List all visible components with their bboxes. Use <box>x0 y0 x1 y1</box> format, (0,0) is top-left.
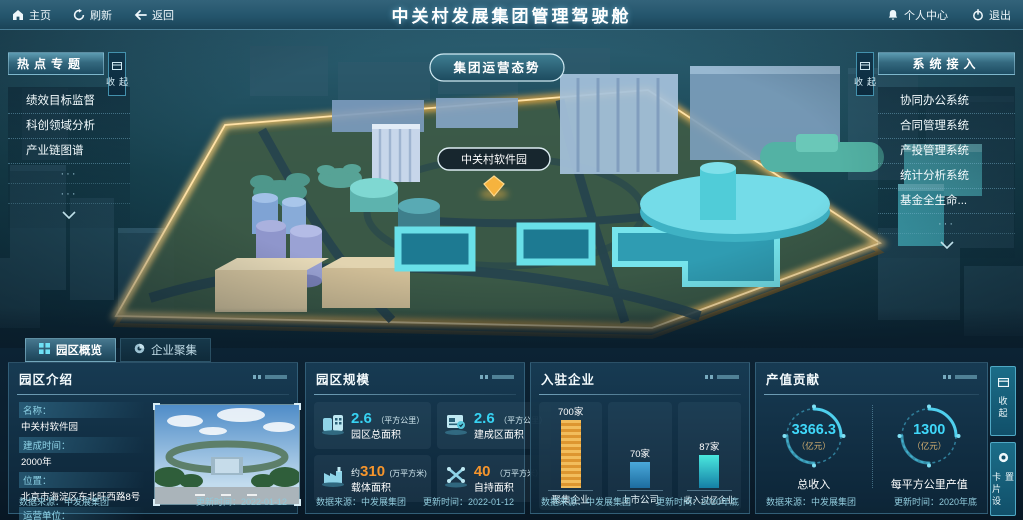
hot-topics-title: 热点专题 <box>8 52 104 75</box>
field-label: 名称： <box>19 402 145 418</box>
system-item[interactable]: 基金全生命... <box>878 189 1015 214</box>
system-item[interactable]: 合同管理系统 <box>878 114 1015 139</box>
hot-topic-more[interactable]: ··· <box>8 164 130 184</box>
home-icon <box>12 9 24 21</box>
gear-icon <box>998 450 1009 468</box>
data-source: 数据来源：中发展集团 <box>19 495 109 508</box>
header-decoration <box>943 375 977 379</box>
stat-value: 2.6 <box>474 410 495 427</box>
bar-column: 70家 上市公司 <box>608 402 671 510</box>
tab-enterprise-cluster[interactable]: 企业聚集 <box>120 338 211 362</box>
top-bar: 主页 刷新 返回 中关村发展集团管理驾驶舱 个人中心 退出 <box>0 0 1023 30</box>
bar-value-label: 87家 <box>699 439 719 453</box>
mode-button-label: 集团运营态势 <box>452 60 540 75</box>
update-time: 更新时间：2020年底 <box>656 495 739 508</box>
enterprises-panel: 入驻企业 700家 聚集企业 70家 上市公司 87家 收入过亿企业 数据来源：… <box>530 362 750 514</box>
update-time: 更新时间：2022-01-12 <box>423 495 514 508</box>
field-value: 2000年 <box>21 454 145 468</box>
photo-corner <box>294 499 301 506</box>
hot-topic-item[interactable]: 科创领域分析 <box>8 114 130 139</box>
update-time: 更新时间：2022-01-12 <box>196 495 287 508</box>
collapse-label: 收起 <box>997 396 1010 420</box>
power-icon <box>972 9 984 21</box>
tab-park-overview[interactable]: 园区概览 <box>25 338 116 362</box>
bar-baseline <box>548 490 593 491</box>
gauge-label: 每平方公里产值 <box>879 476 979 492</box>
stat-label: 园区总面积 <box>351 430 424 441</box>
refresh-label: 刷新 <box>90 7 112 23</box>
stat-value: 310 <box>360 463 385 480</box>
bar-value-label: 700家 <box>558 404 583 418</box>
stat-unit: (万平方米) <box>390 469 427 478</box>
cards-collapse-button[interactable]: 收起 <box>990 366 1016 436</box>
logout-button[interactable]: 退出 <box>972 7 1011 23</box>
bell-icon <box>887 9 899 21</box>
data-source: 数据来源：中发展集团 <box>541 495 631 508</box>
factory-icon <box>320 463 346 494</box>
system-item[interactable]: 产投管理系统 <box>878 139 1015 164</box>
data-source: 数据来源：中发展集团 <box>766 495 856 508</box>
field-label: 运营单位： <box>19 507 145 520</box>
system-access-title: 系统接入 <box>878 52 1015 75</box>
output-value-panel: 产值贡献 3366.3 （亿元） 总收入 <box>755 362 988 514</box>
buildings-icon <box>320 410 346 441</box>
gauge-value: 3366.3 <box>781 422 847 438</box>
collapse-label: 收起 <box>852 77 878 95</box>
home-button[interactable]: 主页 <box>12 7 51 23</box>
enterprises-bar-chart: 700家 聚集企业 70家 上市公司 87家 收入过亿企业 <box>531 395 749 510</box>
stat-total-area: 2.6 （平方公里） 园区总面积 <box>314 402 431 449</box>
bar-baseline <box>617 490 662 491</box>
park-photo <box>154 404 300 505</box>
logout-label: 退出 <box>989 7 1011 23</box>
bar-column: 87家 收入过亿企业 <box>678 402 741 510</box>
header-decoration <box>480 375 514 379</box>
tab-label: 园区概览 <box>56 342 102 358</box>
panel-title: 入驻企业 <box>541 373 595 387</box>
park-scale-panel: 园区规模 2.6 （平方公里） 园区总面积 2.6 （平方 <box>305 362 525 514</box>
hot-topics-collapse-button[interactable]: 收起 <box>108 52 126 96</box>
bar-baseline <box>687 490 732 491</box>
collapse-label: 收起 <box>104 77 130 95</box>
back-button[interactable]: 返回 <box>134 7 174 23</box>
crossed-arrows-icon <box>443 463 469 494</box>
chevron-down-icon <box>940 236 954 254</box>
system-access-panel: 系统接入 收起 协同办公系统 合同管理系统 产投管理系统 统计分析系统 基金全生… <box>878 52 1015 258</box>
card-settings-button[interactable]: 卡片设置 <box>990 442 1016 516</box>
park-marker-label: 中关村软件园 <box>461 152 527 166</box>
back-label: 返回 <box>152 7 174 23</box>
bar <box>699 455 719 488</box>
tab-label: 企业聚集 <box>151 342 197 358</box>
bar-column: 700家 聚集企业 <box>539 402 602 510</box>
grid-icon <box>39 343 50 357</box>
gauge-value: 1300 <box>896 422 962 438</box>
field-label: 位置： <box>19 472 145 488</box>
header-decoration <box>253 375 287 379</box>
gauge-divider <box>872 405 873 488</box>
park-intro-panel: 园区介绍 名称： 中关村软件园 建成时间： 2000年 位置： 北京市海淀区东北… <box>8 362 298 514</box>
personal-center-button[interactable]: 个人中心 <box>887 7 948 23</box>
system-item[interactable]: 统计分析系统 <box>878 164 1015 189</box>
update-time: 更新时间：2020年底 <box>894 495 977 508</box>
gauge-output-per-km: 1300 （亿元） 每平方公里产值 <box>879 403 979 492</box>
stat-value: 40 <box>474 463 491 480</box>
field-label: 建成时间： <box>19 437 145 453</box>
home-label: 主页 <box>29 7 51 23</box>
blueprint-icon <box>443 410 469 441</box>
panel-title: 园区介绍 <box>19 373 73 387</box>
stat-value: 2.6 <box>351 410 372 427</box>
gauge-unit: （亿元） <box>896 440 962 452</box>
system-more[interactable]: ··· <box>878 214 1015 234</box>
refresh-button[interactable]: 刷新 <box>73 7 112 23</box>
stat-unit: （平方公里） <box>376 416 424 425</box>
data-source: 数据来源：中发展集团 <box>316 495 406 508</box>
refresh-icon <box>73 9 85 21</box>
card-settings-label: 卡片设置 <box>990 472 1016 515</box>
photo-corner <box>294 403 301 410</box>
bottom-tabs: 园区概览 企业聚集 <box>25 338 211 362</box>
photo-corner <box>153 403 160 410</box>
personal-center-label: 个人中心 <box>904 7 948 23</box>
gauge-total-revenue: 3366.3 （亿元） 总收入 <box>764 403 864 492</box>
stat-prefix: 约 <box>351 468 360 478</box>
gauge-label: 总收入 <box>764 476 864 492</box>
panel-title: 园区规模 <box>316 373 370 387</box>
system-item[interactable]: 协同办公系统 <box>878 89 1015 114</box>
hot-topic-item[interactable]: 产业链图谱 <box>8 139 130 164</box>
collapse-icon <box>860 57 870 75</box>
system-scroll-down[interactable] <box>878 234 1015 256</box>
system-access-collapse-button[interactable]: 收起 <box>856 52 874 96</box>
collapse-icon <box>112 57 122 75</box>
bar <box>561 420 581 488</box>
field-value: 中关村软件园 <box>21 419 145 433</box>
gauge-unit: （亿元） <box>781 440 847 452</box>
bar <box>630 462 650 488</box>
collapse-icon <box>998 374 1009 392</box>
panel-title: 产值贡献 <box>766 373 820 387</box>
back-arrow-icon <box>134 9 147 21</box>
stat-label: 载体面积 <box>351 483 427 494</box>
hot-topic-more[interactable]: ··· <box>8 184 130 204</box>
hot-topics-scroll-down[interactable] <box>8 204 130 226</box>
header-decoration <box>705 375 739 379</box>
chevron-down-icon <box>62 206 76 224</box>
hot-topics-panel: 热点专题 收起 绩效目标监督 科创领域分析 产业链图谱 ··· ··· <box>8 52 130 228</box>
enterprise-cluster-icon <box>134 343 145 357</box>
mode-button: 集团运营态势 <box>430 54 564 81</box>
bar-value-label: 70家 <box>630 446 650 460</box>
